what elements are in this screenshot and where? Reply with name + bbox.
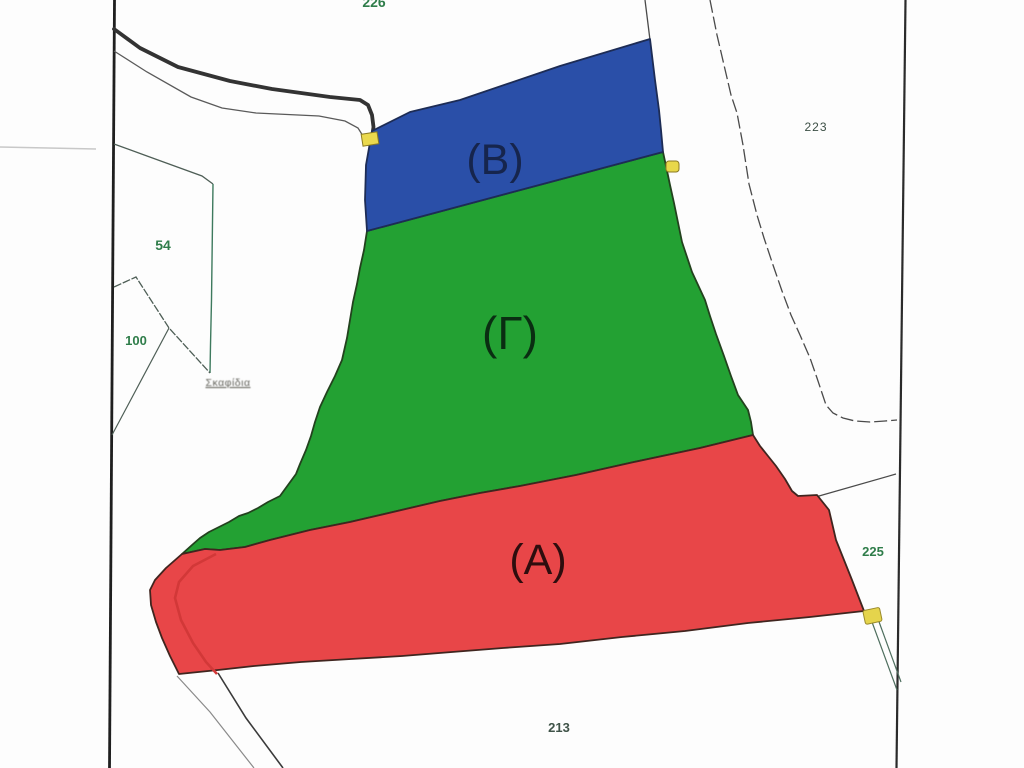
svg-text:100: 100 [125, 333, 147, 348]
svg-text:(Γ): (Γ) [482, 307, 538, 359]
svg-text:54: 54 [155, 237, 171, 253]
svg-text:213: 213 [548, 720, 570, 735]
svg-text:(B): (B) [466, 136, 523, 184]
svg-text:223: 223 [804, 120, 827, 134]
svg-text:225: 225 [862, 544, 884, 559]
svg-text:Σκαφίδια: Σκαφίδια [205, 377, 250, 389]
svg-text:(A): (A) [509, 536, 566, 584]
svg-text:226: 226 [362, 0, 386, 10]
